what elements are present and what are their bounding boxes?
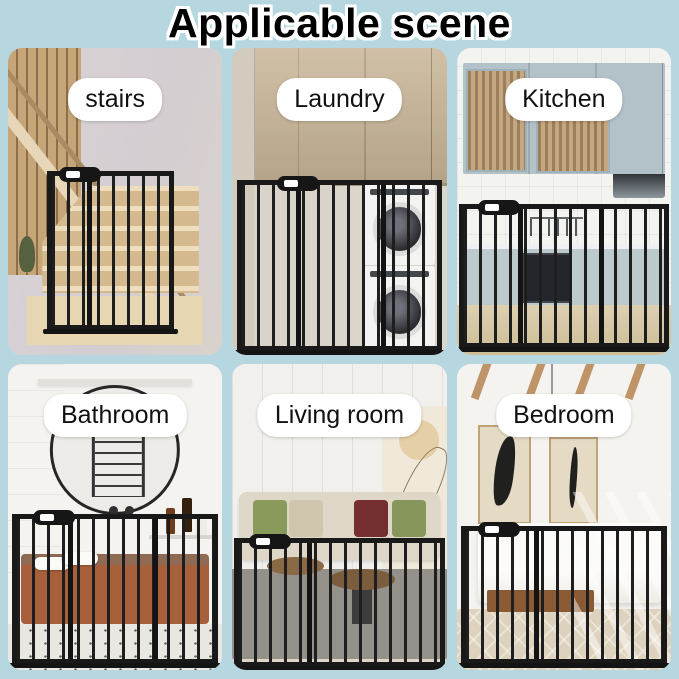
gate-lock-handle xyxy=(478,200,520,215)
scene-grid: stairs Laundry xyxy=(0,46,679,679)
gate-door-post xyxy=(87,176,92,325)
scene-label: Bedroom xyxy=(496,394,631,437)
gate-door-post xyxy=(599,209,604,343)
gate-lock-handle xyxy=(249,534,291,549)
gate-lock-handle xyxy=(277,176,319,191)
gate-lock-handle xyxy=(59,167,101,182)
scene-label: Kitchen xyxy=(505,78,622,121)
page-title: Applicable scene xyxy=(0,0,679,46)
scene-label: Laundry xyxy=(277,78,401,121)
safety-gate xyxy=(12,514,218,664)
gate-door-post xyxy=(381,185,386,347)
product-scene-collage: { "title": "Applicable scene", "colors":… xyxy=(0,0,679,679)
scene-panel-laundry: Laundry xyxy=(232,48,446,355)
scene-panel-kitchen: Kitchen xyxy=(457,48,671,355)
gate-door-post xyxy=(296,185,301,347)
scene-panel-stairs: stairs xyxy=(8,48,222,355)
cushion xyxy=(392,500,426,537)
safety-gate xyxy=(459,204,669,348)
safety-gate xyxy=(234,538,444,667)
cushion xyxy=(289,500,323,537)
picture-frame xyxy=(478,425,531,524)
cushion xyxy=(253,500,287,537)
range-hood xyxy=(613,174,664,199)
scene-panel-bedroom: Bedroom xyxy=(457,364,671,671)
scene-panel-bathroom: Bathroom xyxy=(8,364,222,671)
gate-lock-handle xyxy=(478,522,520,537)
cushion xyxy=(354,500,388,537)
potted-plant xyxy=(19,236,35,272)
scene-label: Living room xyxy=(258,394,421,437)
picture-frame xyxy=(549,437,598,524)
gate-door-post xyxy=(68,519,73,659)
safety-gate xyxy=(461,526,667,664)
safety-gate xyxy=(237,180,443,352)
scene-label: stairs xyxy=(68,78,162,121)
wall-shelf xyxy=(38,379,192,385)
gate-door-post xyxy=(153,519,158,659)
gate-door-post xyxy=(518,209,523,343)
gate-door-post xyxy=(307,543,312,662)
scene-panel-living-room: Living room xyxy=(232,364,446,671)
gate-door-post xyxy=(534,531,539,659)
gate-lock-handle xyxy=(33,510,75,525)
safety-gate xyxy=(47,171,175,330)
scene-label: Bathroom xyxy=(44,394,186,437)
